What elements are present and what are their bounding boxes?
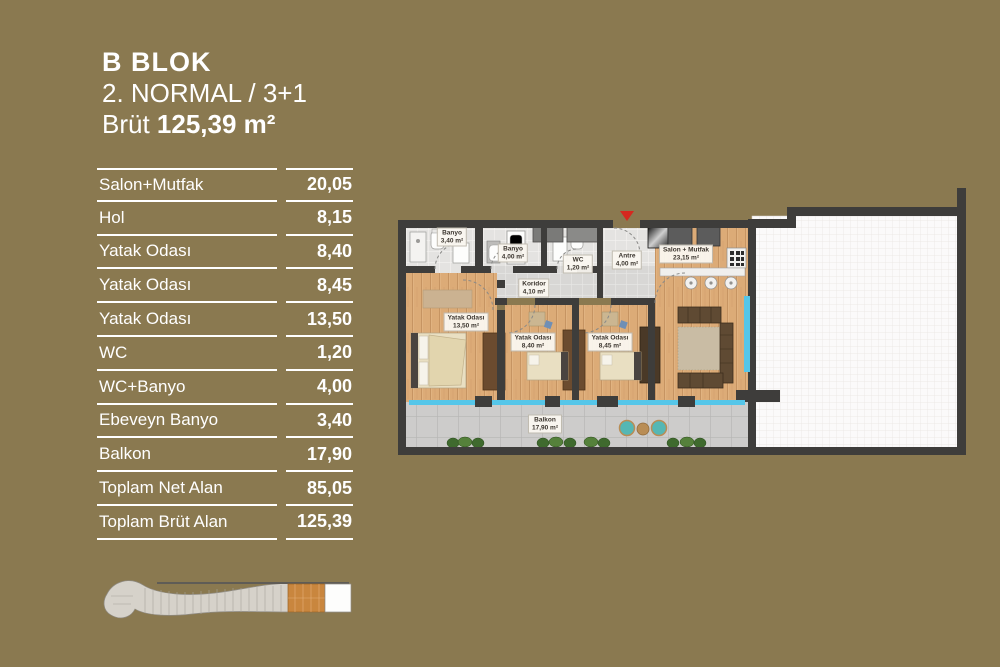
- room-name: Yatak Odası: [97, 236, 277, 270]
- table-row: Salon+Mutfak20,05: [97, 168, 353, 202]
- area-table: Salon+Mutfak20,05 Hol8,15 Yatak Odası8,4…: [97, 168, 353, 540]
- room-area: 1,20: [286, 337, 353, 371]
- room-label-balkon: Balkon17,90 m²: [528, 415, 562, 434]
- room-area: 85,05: [286, 472, 353, 506]
- room-area: 3,40: [286, 405, 353, 439]
- key-plan-terrace-block: [325, 584, 351, 612]
- room-area: 8,45: [286, 269, 353, 303]
- room-label-yatak-1: Yatak Odası13,50 m²: [444, 313, 489, 332]
- entrance-arrow-icon: [620, 211, 634, 221]
- room-area: 13,50: [286, 303, 353, 337]
- table-row: Toplam Net Alan85,05: [97, 472, 353, 506]
- room-label-yatak-2: Yatak Odası8,40 m²: [511, 333, 556, 352]
- gross-area: Brüt 125,39 m²: [102, 109, 307, 140]
- room-name: Hol: [97, 202, 277, 236]
- gross-area-prefix: Brüt: [102, 109, 157, 139]
- table-row: Yatak Odası13,50: [97, 303, 353, 337]
- table-row: WC1,20: [97, 337, 353, 371]
- room-label-banyo: Banyo4,00 m²: [498, 244, 528, 263]
- room-label-ebeveyn-banyo: Banyo3,40 m²: [437, 228, 467, 247]
- block-name: B BLOK: [102, 47, 307, 78]
- table-row: Ebeveyn Banyo3,40: [97, 405, 353, 439]
- room-name: WC+Banyo: [97, 371, 277, 405]
- table-row: Balkon17,90: [97, 438, 353, 472]
- table-row: Hol8,15: [97, 202, 353, 236]
- room-label-koridor: Koridor4,10 m²: [518, 279, 549, 298]
- balcony-chairs: [620, 421, 667, 436]
- room-label-salon: Salon + Mutfak23,15 m²: [659, 245, 713, 264]
- key-plan-drawing: [97, 570, 353, 622]
- floor-type: 2. NORMAL / 3+1: [102, 78, 307, 109]
- room-name: Toplam Net Alan: [97, 472, 277, 506]
- table-row: Toplam Brüt Alan125,39: [97, 506, 353, 540]
- room-name: Toplam Brüt Alan: [97, 506, 277, 540]
- room-name: WC: [97, 337, 277, 371]
- room-area: 20,05: [286, 168, 353, 202]
- page-title: B BLOK 2. NORMAL / 3+1 Brüt 125,39 m²: [102, 47, 307, 140]
- gross-area-value: 125,39 m²: [157, 109, 276, 139]
- room-label-wc: WC1,20 m²: [563, 255, 593, 274]
- key-plan: [97, 570, 353, 622]
- room-area: 125,39: [286, 506, 353, 540]
- room-name: Salon+Mutfak: [97, 168, 277, 202]
- table-row: Yatak Odası8,45: [97, 269, 353, 303]
- room-area: 4,00: [286, 371, 353, 405]
- room-name: Yatak Odası: [97, 303, 277, 337]
- room-area: 17,90: [286, 438, 353, 472]
- room-name: Yatak Odası: [97, 269, 277, 303]
- table-row: Yatak Odası8,40: [97, 236, 353, 270]
- room-name: Ebeveyn Banyo: [97, 405, 277, 439]
- room-area: 8,40: [286, 236, 353, 270]
- terrace-floor: [752, 216, 959, 449]
- room-name: Balkon: [97, 438, 277, 472]
- room-area: 8,15: [286, 202, 353, 236]
- room-label-yatak-3: Yatak Odası8,45 m²: [588, 333, 633, 352]
- room-label-antre: Antre4,00 m²: [612, 251, 642, 270]
- floor-plan: Banyo3,40 m² Banyo4,00 m² WC1,20 m² Antr…: [395, 185, 975, 465]
- table-row: WC+Banyo4,00: [97, 371, 353, 405]
